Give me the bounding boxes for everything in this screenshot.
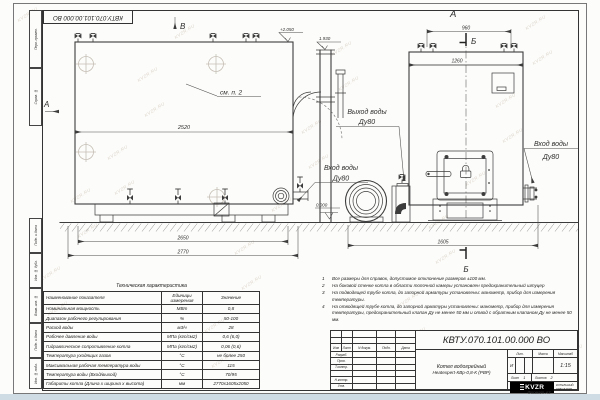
product-name-line2: Heatexpert-КВр-0,8-К (РВР)	[432, 370, 490, 375]
lit-header: Лит.	[508, 350, 533, 357]
see-note-ref: см. п. 2	[220, 90, 243, 97]
cell-name: Максимальная рабочая температура воды	[44, 361, 162, 369]
rev-col-data: Дата	[396, 344, 415, 351]
draft-fan	[346, 181, 387, 223]
sheet-value: 1	[523, 376, 525, 380]
front-pedestal	[428, 199, 502, 221]
inlet-water-right-dn: Ду80	[542, 154, 559, 161]
note-item: 2На боковой стенке котла в области топоч…	[322, 283, 580, 290]
cell-value: 115	[203, 361, 259, 369]
section-mark-b-bottom: Б	[463, 265, 468, 274]
table-row: Диапазон рабочего регулирования%50-100	[44, 313, 259, 322]
cell-value: 2770х1605х2050	[203, 380, 259, 388]
boiler-body-side	[75, 42, 293, 204]
cell-name: Номинальная мощность	[44, 305, 162, 313]
table-row: Максимальная рабочая температура воды°С1…	[44, 360, 259, 369]
cell-value: 28	[203, 323, 259, 331]
dim-960: 960	[462, 26, 471, 32]
cell-units: °С	[162, 352, 203, 360]
table-row: Габариты котла (Длина х ширина х высота)…	[44, 379, 259, 388]
revision-header-row: Изм Лист N докум. Подп. Дата	[331, 343, 415, 351]
inlet-water-left-label: Вход воды	[324, 164, 359, 172]
boiler-side-view: 2520	[75, 34, 346, 223]
note-text: На подводящей трубе котла, до запорной а…	[332, 290, 580, 304]
furnace-door	[426, 151, 493, 200]
rev-col-izm: Изм	[331, 344, 342, 351]
dim-2650: 2650	[176, 236, 188, 242]
note-item: 4На отводящей трубе котла, до запорной а…	[322, 304, 580, 325]
cell-name: Расход воды	[44, 323, 162, 331]
cell-value: 0,8	[203, 305, 259, 313]
cell-units: °С	[162, 370, 203, 378]
title-block: Изм Лист N докум. Подп. Дата Разраб. Про…	[330, 330, 578, 390]
tech-table-title: Техническая характеристика	[43, 283, 260, 289]
cell-value: 0,06 (0,6)	[203, 342, 259, 350]
side-pipe-stub	[293, 190, 308, 201]
tech-table-header-row: Наименование показателя Единицы измерени…	[44, 292, 259, 304]
lit-value: И	[508, 358, 516, 373]
view-label-a: А	[449, 9, 456, 20]
inlet-flange-right	[523, 185, 537, 202]
view-arrow-a-side: А	[43, 100, 49, 109]
cell-name: Габариты котла (Длина х ширина х высота)	[44, 380, 162, 388]
rev-col-docnum: N докум.	[353, 344, 378, 351]
rev-col-list: Лист	[342, 344, 353, 351]
cell-units: м3/ч	[162, 323, 203, 331]
sheet-row: Лист 1 Листов 2	[508, 374, 577, 382]
note-item: 1Все размеры для справок, допустимое отк…	[322, 276, 580, 283]
cell-value: не более 250	[203, 352, 259, 360]
scale-value: 1:15	[554, 358, 577, 373]
cell-units: %	[162, 314, 203, 322]
door-handle	[426, 172, 451, 177]
level-mark-top: +2.050	[280, 27, 294, 32]
cell-units: МПа (кгс/см2)	[162, 342, 203, 350]
meta-value-row: И 1:15	[508, 358, 577, 374]
note-number: 2	[322, 283, 332, 290]
level-mark-chimney: 1.930	[319, 36, 331, 41]
dim-1605: 1605	[437, 240, 448, 246]
bottom-band	[0, 394, 600, 400]
sheet-label: Лист	[511, 376, 519, 380]
cell-units: мм	[162, 380, 203, 388]
role-utv: Утв.	[331, 384, 353, 389]
dim-2770: 2770	[176, 250, 188, 256]
base-skid	[95, 204, 288, 222]
table-row: Расход водым3/ч28	[44, 322, 259, 331]
view-arrow-b: В	[180, 22, 186, 31]
note-text: На отводящей трубе котла, до запорной ар…	[332, 304, 580, 325]
cell-name: Температура воды (Вход/выход)	[44, 370, 162, 378]
note-number: 3	[322, 290, 332, 304]
meta-header-row: Лит. Масса Масштаб	[508, 350, 577, 358]
col-header-value: Значение	[203, 292, 259, 304]
notes-list: 1Все размеры для справок, допустимое отк…	[322, 276, 580, 324]
note-number: 1	[322, 276, 332, 283]
mass-header: Масса	[533, 350, 554, 357]
front-view-dimensions: 1605 Б	[348, 205, 538, 274]
revision-table: Изм Лист N докум. Подп. Дата Разраб. Про…	[331, 331, 416, 389]
note-text: На боковой стенке котла в области топочн…	[332, 283, 580, 290]
outlet-water-dn: Ду80	[358, 119, 375, 126]
level-mark-zero: 0.000	[316, 203, 328, 208]
cell-units: МПа (кгс/см2)	[162, 333, 203, 341]
side-flange	[273, 188, 289, 204]
outlet-duct	[392, 184, 410, 223]
table-row: Номинальная мощностьМВт0,8	[44, 304, 259, 313]
document-designation: КВТУ.070.101.00.000 ВО	[416, 331, 577, 350]
cell-name: Температура уходящих газов	[44, 352, 162, 360]
note-text: Все размеры для справок, допустимое откл…	[332, 276, 580, 283]
chimney	[293, 50, 346, 222]
dim-2520: 2520	[177, 125, 191, 131]
table-row: Температура уходящих газов°Сне более 250	[44, 351, 259, 360]
sign-row: Утв.	[331, 383, 415, 389]
table-row: Рабочее давление водыМПа (кгс/см2)0,6 (6…	[44, 332, 259, 341]
cell-name: Гидравлическое сопротивление котла	[44, 342, 162, 350]
cell-value: 70/95	[203, 370, 259, 378]
outlet-water-label: Выход воды	[347, 108, 387, 116]
col-header-name: Наименование показателя	[44, 292, 162, 304]
product-name: Котел водогрейный Heatexpert-КВр-0,8-К (…	[416, 350, 508, 389]
note-number: 4	[322, 304, 332, 325]
tech-table: Наименование показателя Единицы измерени…	[43, 291, 260, 389]
cell-value: 0,6 (6,0)	[203, 333, 259, 341]
cell-units: МВт	[162, 305, 203, 313]
table-row: Гидравлическое сопротивление котлаМПа (к…	[44, 341, 259, 350]
cell-name: Рабочее давление воды	[44, 333, 162, 341]
cell-units: °С	[162, 361, 203, 369]
door-lock-icon	[463, 165, 469, 171]
inlet-water-left-dn: Ду80	[332, 176, 349, 183]
section-mark-b-top: Б	[471, 37, 476, 46]
drawing-sheet: KVZR.RUKVZR.RUKVZR.RUKVZR.RUKVZR.RUKVZR.…	[0, 0, 600, 400]
cell-name: Диапазон рабочего регулирования	[44, 314, 162, 322]
control-panel	[492, 73, 514, 93]
sheets-value: 2	[551, 376, 553, 380]
rev-col-podp: Подп.	[377, 344, 396, 351]
col-header-units: Единицы измерения	[162, 292, 203, 304]
inlet-water-right-label: Вход воды	[534, 140, 569, 148]
dim-1260: 1260	[451, 59, 462, 65]
mass-value	[533, 358, 554, 373]
scale-header: Масштаб	[554, 350, 577, 357]
pipe-labels: Выход воды Ду80 Вход воды Ду80 Вход воды…	[298, 108, 578, 201]
table-row: Температура воды (Вход/выход)°С70/95	[44, 369, 259, 378]
sheets-label: Листов	[535, 376, 547, 380]
cell-value: 50-100	[203, 314, 259, 322]
ground-hatch	[60, 224, 578, 232]
note-item: 3На подводящей трубе котла, до запорной …	[322, 290, 580, 304]
